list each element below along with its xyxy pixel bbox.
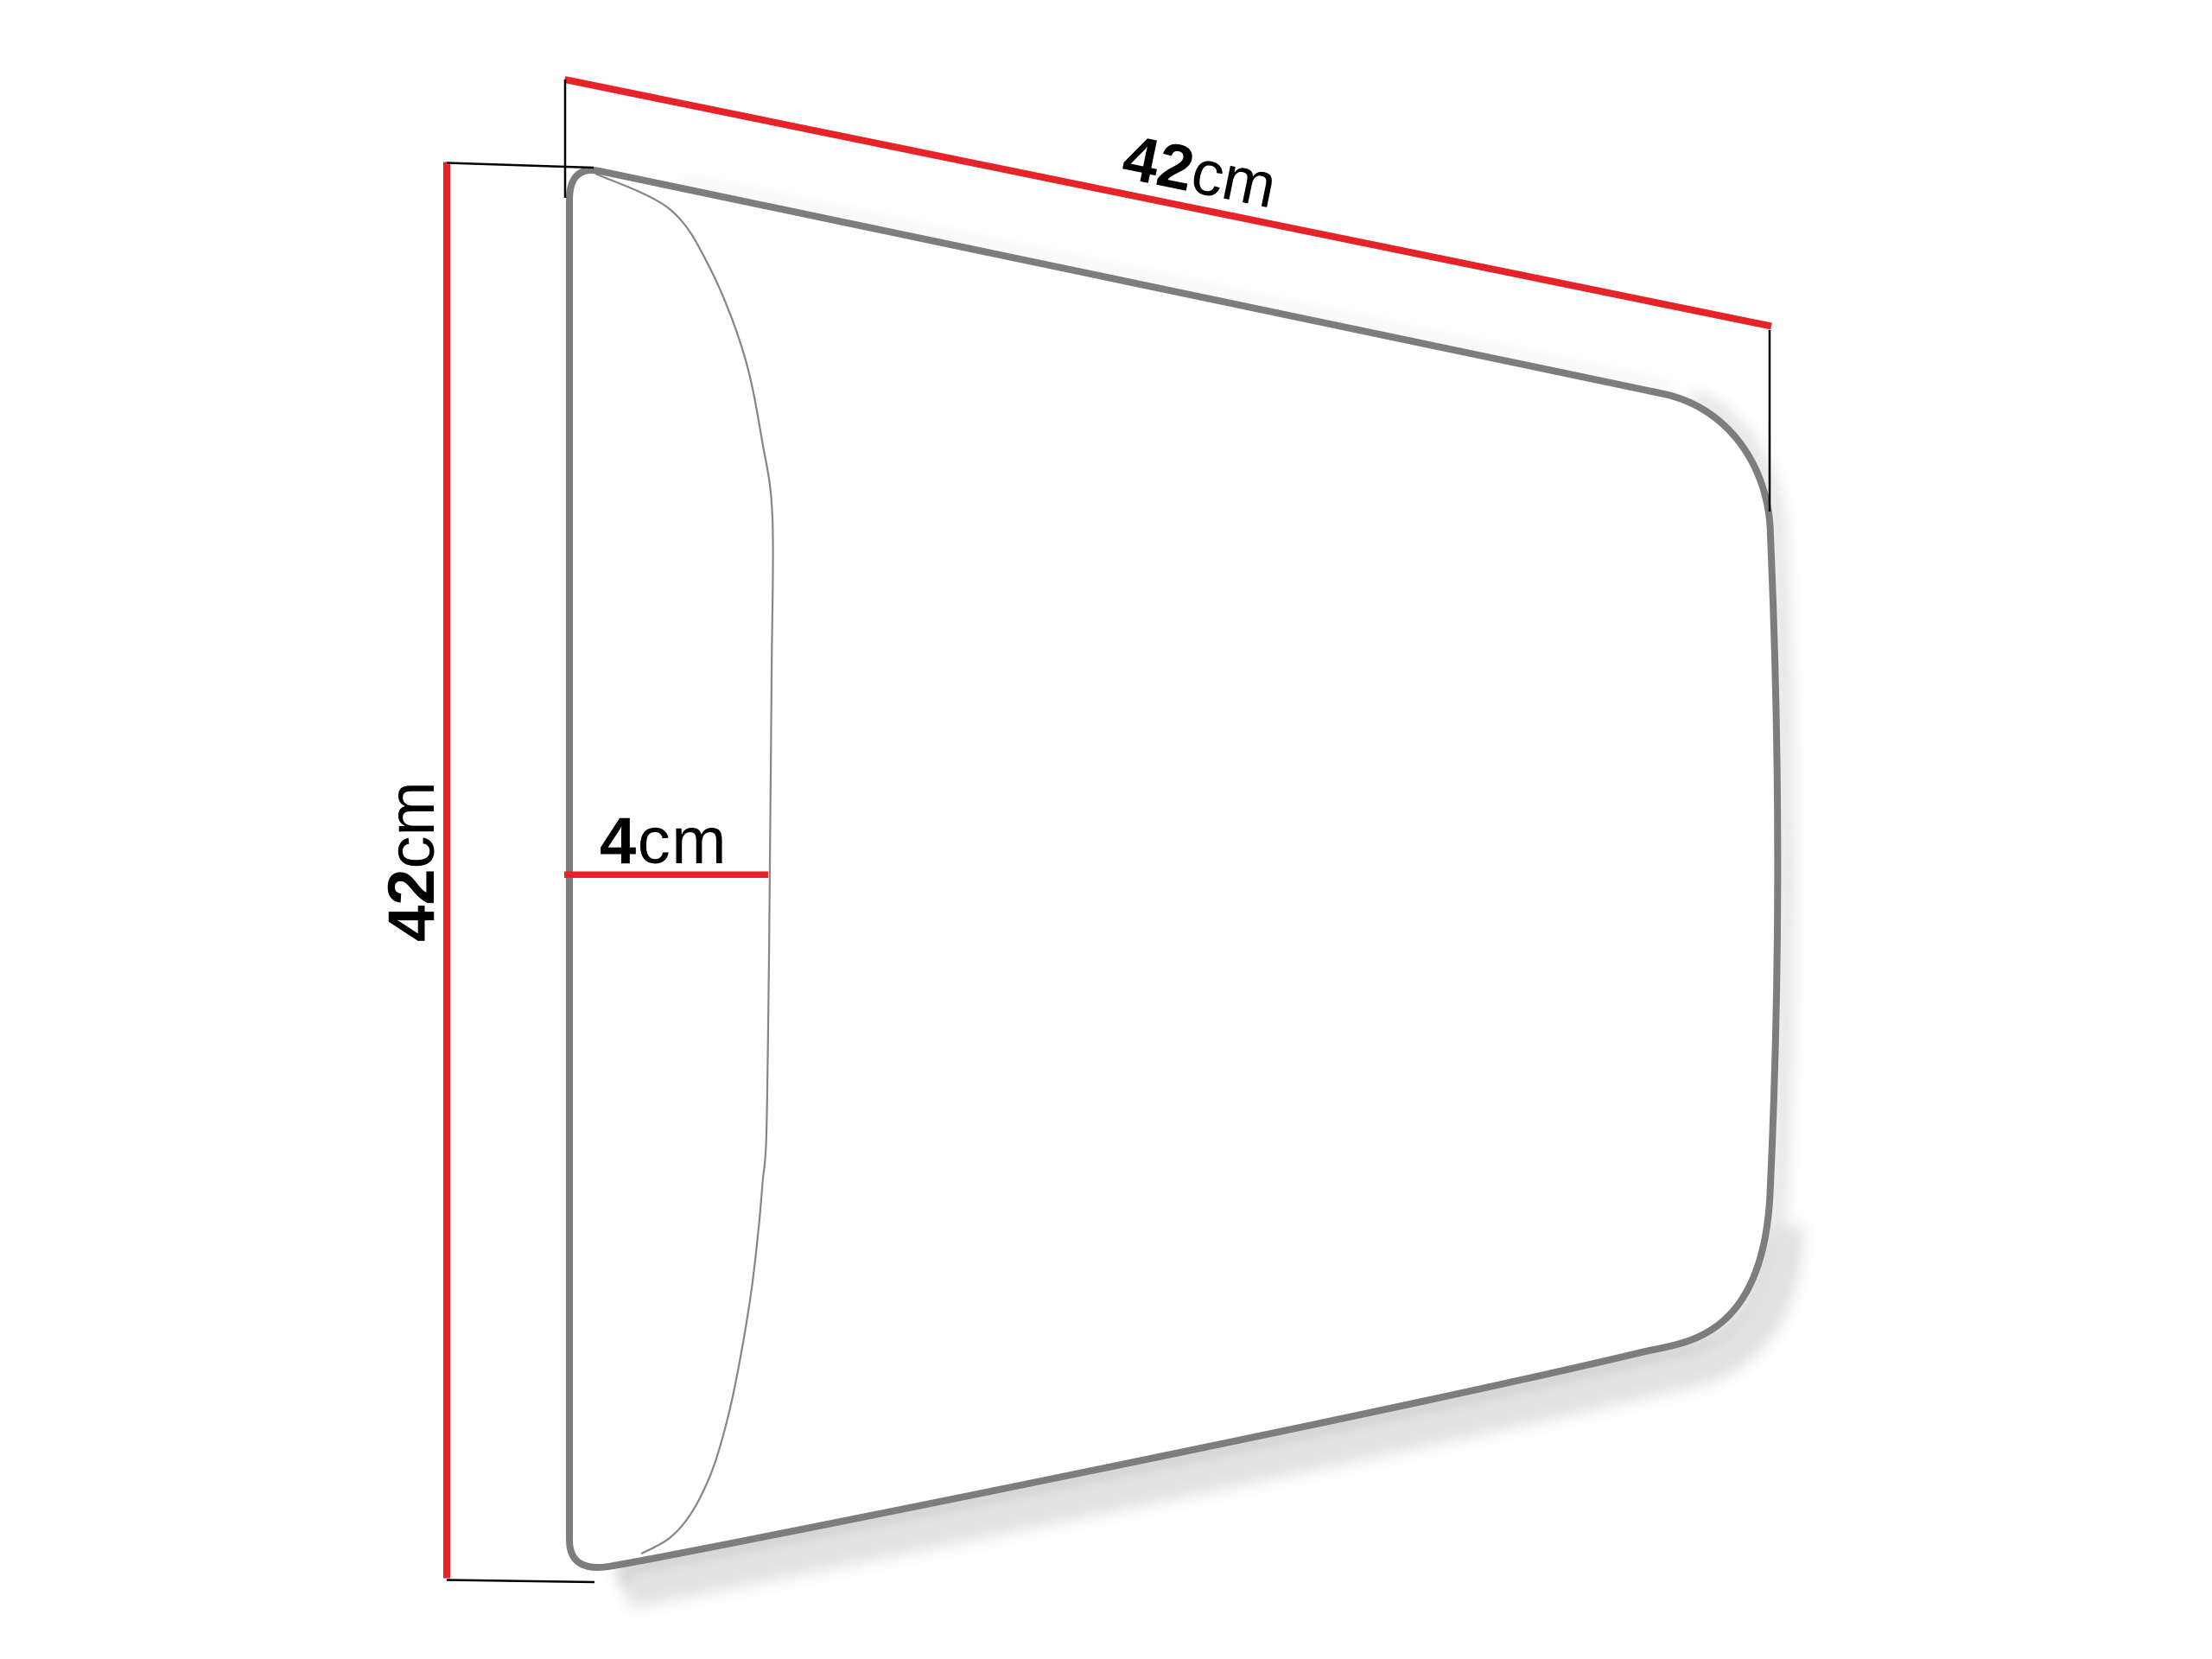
svg-text:42cm: 42cm xyxy=(375,781,448,942)
svg-text:4cm: 4cm xyxy=(600,804,728,878)
